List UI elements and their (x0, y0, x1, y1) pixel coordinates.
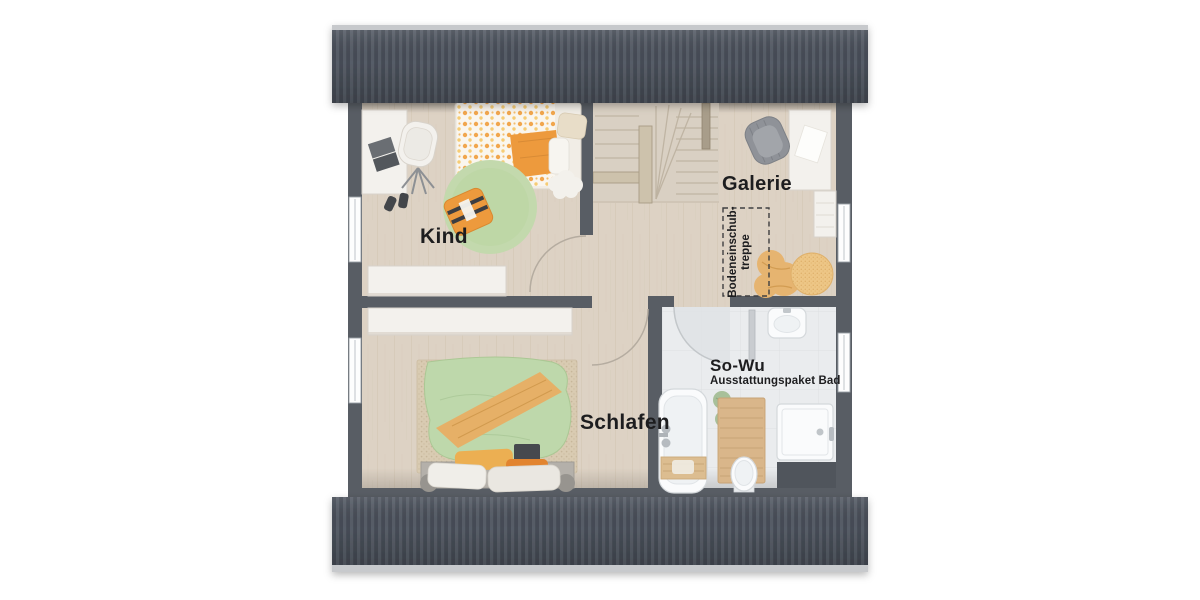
wall-bad-top-right (730, 296, 836, 307)
wardrobe-schlafen (368, 308, 572, 335)
pillow-white-right (488, 465, 561, 492)
attic-ladder-label-line1: Bodeneinschub- (727, 206, 739, 298)
wardrobe-kind (368, 266, 506, 296)
window-galerie (838, 204, 850, 262)
stair-handrail-stub (702, 103, 710, 149)
pillow-white-left (427, 462, 486, 489)
window-schlafen (349, 338, 361, 403)
label-bath-package-subtitle: Ausstattungspaket Bad (710, 375, 841, 387)
label-room-schlafen: Schlafen (580, 411, 670, 434)
wall-bad-corner-block (777, 462, 836, 488)
washbasin (768, 308, 806, 338)
kind-bed-pillow-white (549, 138, 569, 174)
roof-bottom (332, 497, 868, 572)
staircase (593, 103, 719, 203)
shower-faucet (829, 427, 834, 441)
label-room-galerie: Galerie (722, 173, 792, 195)
stair-railing-vertical (639, 126, 652, 203)
door-leaf-bad (749, 310, 755, 360)
wall-kind-schlafen (362, 296, 592, 308)
roof-eave-edge (332, 565, 868, 572)
toilet (731, 457, 757, 492)
room-schlafen (417, 357, 577, 492)
label-room-kind: Kind (420, 225, 468, 248)
window-kind (349, 197, 361, 262)
wall-bad-top-left (648, 296, 674, 307)
shower-tray (777, 404, 834, 460)
kind-bed-pillow-beige (556, 112, 587, 140)
galerie-sideboard (814, 191, 836, 237)
bath-caddy (661, 457, 706, 479)
roof-top (332, 25, 868, 103)
tablet (514, 444, 540, 461)
shower-drain (817, 429, 824, 436)
round-pillow (791, 253, 833, 295)
floor-plan: Bodeneinschub- treppe Kind Galerie Schla… (0, 0, 1200, 600)
stair-railing-horizontal (593, 172, 641, 183)
label-bath-package-title: So-Wu (710, 356, 765, 375)
attic-ladder-label-line2: treppe (740, 234, 752, 270)
bathtub (659, 389, 707, 493)
floor-plan-canvas: Bodeneinschub- treppe Kind Galerie Schla… (0, 0, 1200, 600)
